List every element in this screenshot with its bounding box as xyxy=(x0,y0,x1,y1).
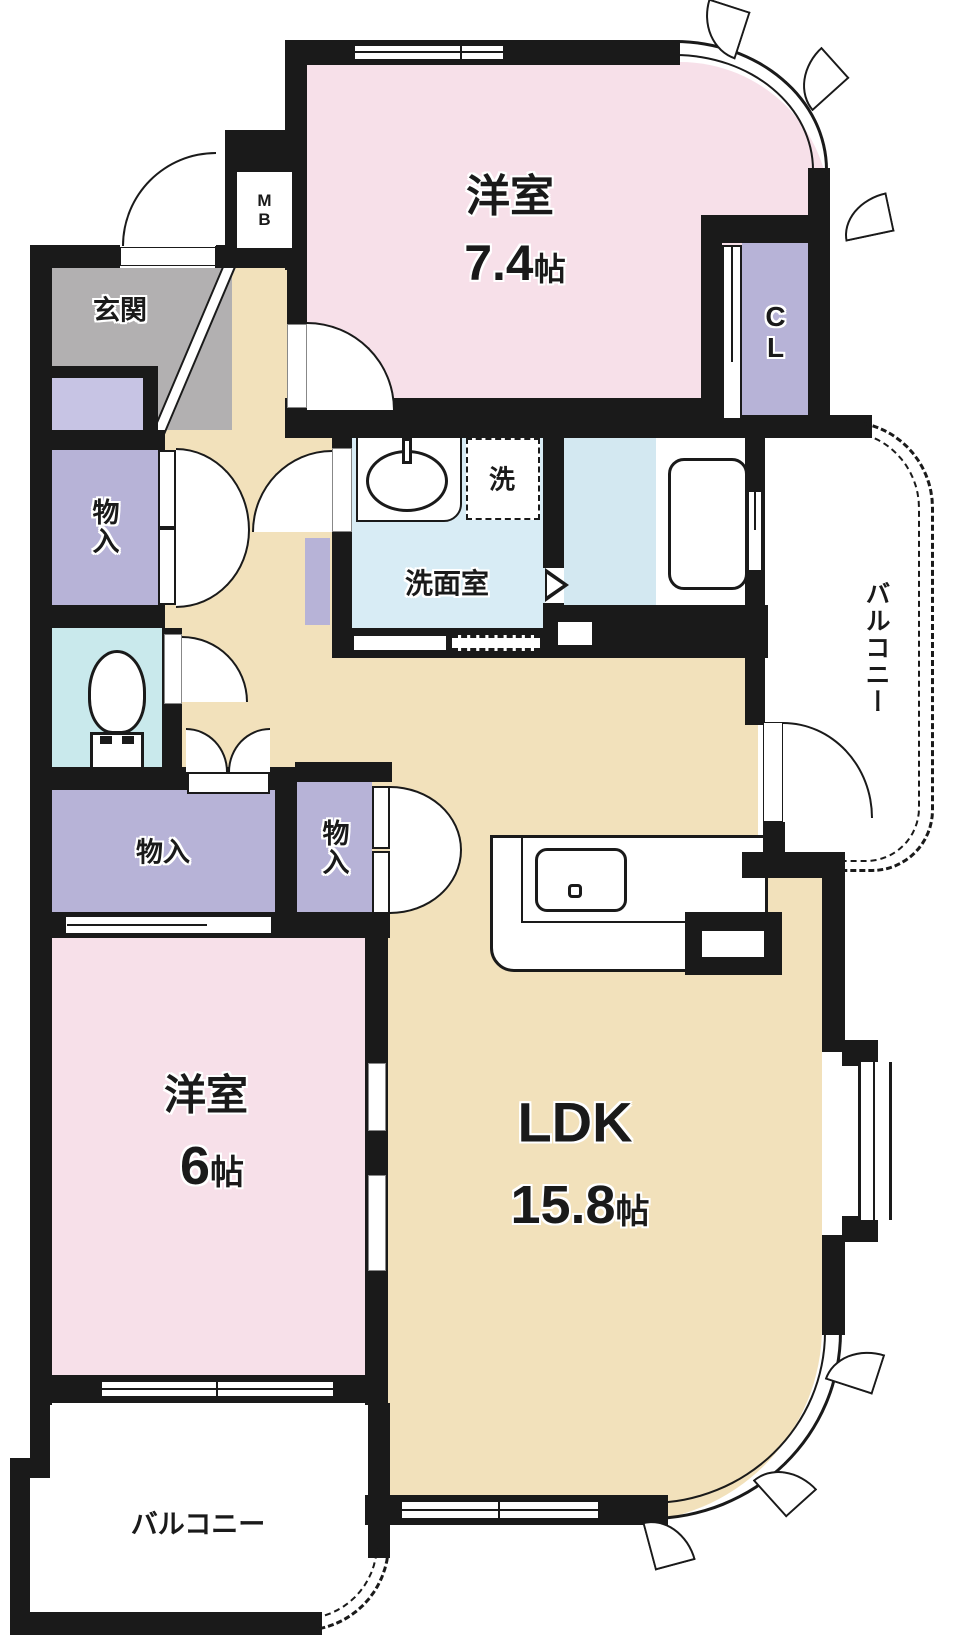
hall-cabinet xyxy=(305,538,330,625)
kitchen-sink-drain xyxy=(568,884,582,898)
door-leaf xyxy=(372,851,390,914)
bath-door-arrow-inner xyxy=(547,574,563,596)
size-value: 15.8 xyxy=(510,1175,615,1235)
entrance-label: 玄関 xyxy=(93,289,147,328)
floor-plan: 洋室 7.4帖 CL MB 玄関 物入 洗 洗面室 バルコニー 物入 物入 洋室… xyxy=(0,0,960,1650)
sliding-door-line xyxy=(67,924,207,926)
wall xyxy=(543,432,564,568)
washer-label: 洗 xyxy=(489,460,515,497)
room-label-bedroom1: 洋室 xyxy=(466,160,554,224)
door-leaf xyxy=(158,528,176,605)
wall xyxy=(365,935,388,1405)
shoe-cabinet xyxy=(52,378,143,430)
balcony-bottom-label: バルコニー xyxy=(131,1503,265,1542)
wall xyxy=(225,172,237,250)
closet-label: CL xyxy=(759,301,791,363)
kitchen-sink xyxy=(535,848,627,912)
wall xyxy=(808,168,830,430)
window-tick xyxy=(498,1500,500,1520)
meter-box-label: MB xyxy=(254,191,274,229)
wall xyxy=(822,872,845,1052)
door-gap xyxy=(164,634,182,704)
bay-window-line xyxy=(873,1062,875,1220)
door-gap xyxy=(332,448,352,532)
toilet-tank xyxy=(90,732,144,770)
window-line xyxy=(402,1509,598,1511)
door-leaf xyxy=(372,786,390,849)
bathtub xyxy=(668,458,748,590)
wall xyxy=(30,605,165,628)
wall xyxy=(295,762,392,782)
size-unit: 帖 xyxy=(616,1193,650,1231)
size-value: 7.4 xyxy=(464,235,534,291)
size-unit: 帖 xyxy=(210,1154,244,1192)
wall xyxy=(215,245,307,268)
storage-upper-label: 物入 xyxy=(85,498,124,556)
sliding-door xyxy=(368,1063,386,1131)
door-leaf xyxy=(158,450,176,528)
toilet-bowl xyxy=(88,650,146,734)
washbasin-tap xyxy=(402,438,412,464)
bath-door-step xyxy=(558,622,592,645)
wall xyxy=(275,768,297,935)
wall xyxy=(287,268,307,324)
wall xyxy=(225,130,307,172)
storage-small-label: 物入 xyxy=(315,819,354,877)
door-gap xyxy=(287,324,307,408)
wall xyxy=(52,366,145,378)
sliding-door-line xyxy=(731,247,733,362)
room-size-ldk: 15.8帖 xyxy=(510,1174,649,1236)
window-tick xyxy=(216,1380,218,1398)
vent-strip xyxy=(452,635,540,651)
room-label-ldk: LDK xyxy=(517,1090,632,1155)
door-leaf xyxy=(763,722,783,822)
wall xyxy=(30,430,165,450)
size-unit: 帖 xyxy=(534,251,566,287)
window xyxy=(352,634,448,652)
curved-window-inner xyxy=(675,54,814,170)
balcony-right-label: バルコニー xyxy=(858,581,894,716)
room-size-bedroom2: 6帖 xyxy=(180,1135,244,1197)
wall xyxy=(10,1458,30,1635)
wall xyxy=(701,215,722,430)
toilet-handle xyxy=(100,736,112,744)
kitchen-partition-opening xyxy=(702,931,764,957)
wall xyxy=(30,1400,50,1478)
entry-door-swing xyxy=(122,152,216,246)
bay-window xyxy=(858,1062,892,1220)
wall xyxy=(10,1612,322,1635)
size-value: 6 xyxy=(180,1136,210,1196)
toilet-handle2 xyxy=(122,736,134,744)
window-tick xyxy=(460,44,462,61)
room-size-bedroom1: 7.4帖 xyxy=(464,234,566,292)
wall xyxy=(30,245,52,1405)
storage-wide-label: 物入 xyxy=(136,831,190,870)
wall xyxy=(822,1235,845,1335)
casement-window-icon xyxy=(642,1511,696,1570)
bath-floor xyxy=(564,438,656,607)
door-leaf xyxy=(187,772,270,794)
washroom-label: 洗面室 xyxy=(405,562,489,602)
casement-window-icon xyxy=(837,192,894,242)
window-line xyxy=(355,51,503,53)
wall xyxy=(143,366,158,432)
sliding-door xyxy=(368,1175,386,1271)
room-label-bedroom2: 洋室 xyxy=(164,1062,248,1123)
entry-door-gap xyxy=(120,247,216,266)
kitchen-counter-line-h xyxy=(521,921,687,923)
kitchen-counter-line-v xyxy=(521,837,523,923)
